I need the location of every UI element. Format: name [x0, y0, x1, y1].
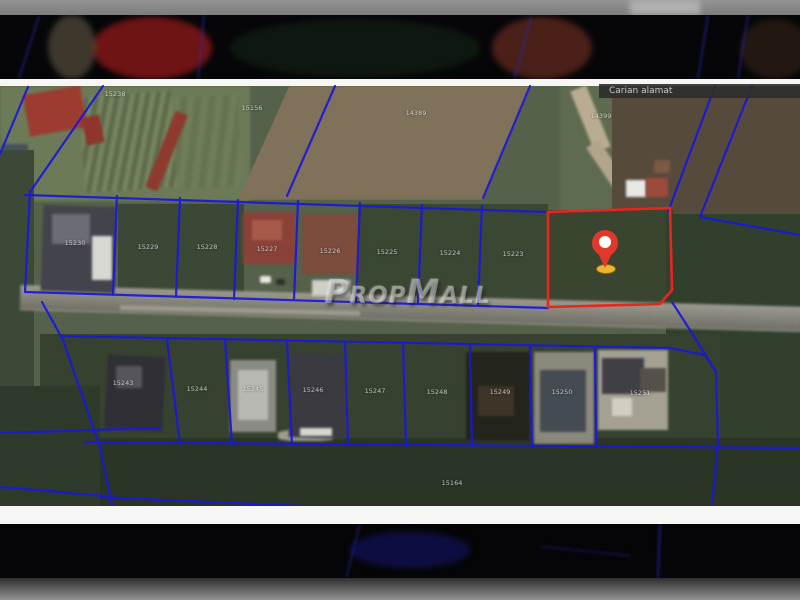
- trees-top-right: [612, 96, 800, 218]
- dim-red-roof-blob: [92, 17, 212, 79]
- search-address-bar[interactable]: Carian alamat: [599, 84, 800, 98]
- house-roof-detail: [52, 214, 90, 244]
- trees-bottom-strip: [0, 438, 800, 506]
- house-roof-detail: [238, 370, 268, 420]
- house-roof-detail: [116, 366, 142, 388]
- house-dark-roof: [289, 353, 348, 439]
- house-porch: [612, 398, 632, 416]
- dim-cadastral-line: [18, 16, 40, 77]
- car: [276, 279, 285, 285]
- bare-earth-lot: [238, 86, 540, 200]
- car: [290, 281, 299, 287]
- small-white-roof: [626, 180, 646, 197]
- house-roof-detail: [640, 368, 666, 392]
- letterbox-bottom-strip: [0, 578, 800, 600]
- dim-soil-blob: [492, 17, 592, 79]
- house-porch: [300, 428, 332, 436]
- car: [260, 276, 271, 283]
- house-porch: [92, 236, 112, 280]
- crop-rows-field-2: [174, 94, 243, 189]
- house-dark-roof: [540, 370, 586, 432]
- dim-cadastral-line: [540, 545, 630, 556]
- dim-blue-glow: [350, 532, 470, 568]
- dim-green-blob: [230, 19, 480, 77]
- dim-cadastral-line: [657, 524, 661, 578]
- pin-inner-dot: [599, 236, 611, 248]
- letterbox-gap-bottom: [0, 506, 800, 524]
- video-frame: PropMall Carian alamat 15238151561438914…: [0, 0, 800, 600]
- letterbox-top-strip: [0, 0, 800, 15]
- house-brown-roof: [302, 214, 358, 274]
- strip-highlight: [630, 0, 700, 15]
- cleared-lot-patch: [478, 386, 514, 416]
- dim-road-blob: [48, 15, 96, 79]
- dimmed-map-bottom: [0, 524, 800, 578]
- watermark: PropMall: [300, 270, 515, 314]
- dim-brown-blob: [740, 19, 800, 79]
- house-roof-detail: [252, 220, 282, 240]
- dim-cadastral-line: [697, 15, 709, 79]
- dimmed-map-top: [0, 15, 800, 79]
- house-dark-roof: [602, 358, 644, 394]
- small-brown-shed: [654, 160, 670, 173]
- trees-bottom-left: [0, 386, 100, 506]
- small-red-roof: [646, 178, 668, 197]
